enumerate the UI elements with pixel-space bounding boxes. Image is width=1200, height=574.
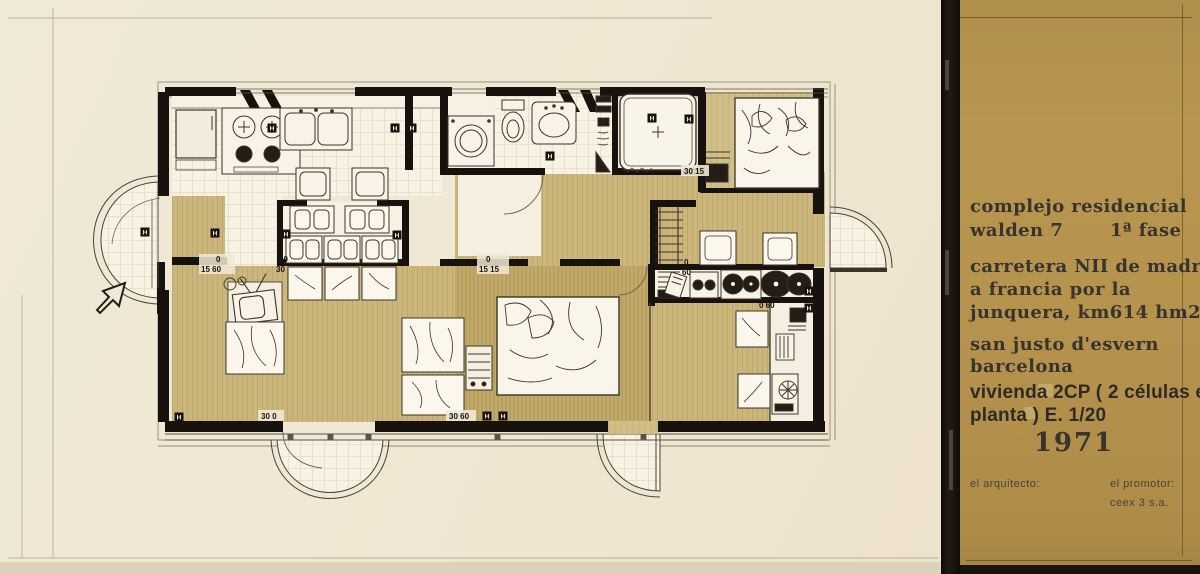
svg-text:H: H [143,230,148,237]
h-marker: H [546,152,555,161]
drawing-title-line1: vivienda 2CP ( 2 células en [970,382,1200,404]
svg-text:H: H [284,232,289,239]
bottom-railing [165,434,828,440]
paper-bottom-edge [0,562,941,574]
table [290,206,334,233]
record-player [721,270,761,299]
level-label: 30 0 [261,412,277,421]
balcony-bottom-middle [597,434,660,497]
city-line1: san justo d'esvern [970,334,1159,355]
svg-text:H: H [393,126,398,133]
washing-machine [448,116,494,166]
level-label: 60 [279,255,288,264]
address-line3: junquera, km614 hm2. [970,302,1200,323]
level-label: 30 15 [684,167,705,176]
table [324,236,360,263]
h-marker: H [175,413,184,422]
level-label: 0 [684,258,689,267]
floor-cushions [288,267,396,300]
h-marker: H [685,115,694,124]
promoter-label: el promotor: [1110,478,1175,490]
balcony-left [94,176,161,304]
double-bed [497,297,619,395]
tape-scuff [949,430,953,490]
address-line2: a francia por la [970,279,1131,300]
books [776,334,794,360]
svg-text:H: H [687,117,692,124]
vinyl-records [761,271,811,297]
h-marker: H [141,228,150,237]
project-phase: 1ª fase [1110,220,1181,241]
svg-text:H: H [213,231,218,238]
double-sink [280,108,352,150]
level-label: 15 15 [479,265,500,274]
h-marker: H [282,230,291,239]
shower [620,94,696,172]
city-line2: barcelona [970,356,1073,377]
h-marker: H [393,231,402,240]
panel-bottom-edge [960,565,1200,574]
svg-text:H: H [807,289,812,296]
project-title-line1: complejo residencial [970,196,1187,217]
svg-text:H: H [548,154,553,161]
architect-label: el arquitecto: [970,478,1040,490]
address-line1: carretera NII de madrid [970,256,1200,277]
tape-scuff [945,250,949,295]
table [286,236,322,263]
level-label: 30 60 [449,412,470,421]
washbasin [532,102,576,144]
table [345,206,389,233]
entry-arrow [97,283,125,313]
svg-text:H: H [395,233,400,240]
h-marker: H [268,124,277,133]
h-marker: H [391,124,400,133]
level-label: 0 [216,255,221,264]
h-marker: H [805,287,814,296]
panel-rule-top [960,17,1192,18]
panel-rule-right [1182,4,1183,556]
cassette-deck [665,272,718,298]
svg-text:H: H [410,126,415,133]
table [362,236,398,263]
svg-text:H: H [650,116,655,123]
black-tape-spine [941,0,960,574]
radio [466,346,492,390]
level-label: 60 [682,268,691,277]
balcony-bottom-left [271,440,389,499]
svg-text:H: H [485,414,490,421]
level-label: 30 [276,265,285,274]
svg-text:H: H [270,126,275,133]
h-marker: H [211,229,220,238]
svg-text:H: H [177,415,182,422]
h-marker: H [499,412,508,421]
drawing-title-line2: planta ) E. 1/20 [970,405,1106,427]
panel-rule-bottom [966,560,1192,561]
svg-text:H: H [807,306,812,313]
scanned-drawing-sheet: 0 15 60 60 30 0 15 15 0 60 30 15 0 60 30… [0,0,1200,574]
balcony-right [830,207,892,272]
year: 1971 [960,428,1188,458]
h-marker: H [408,124,417,133]
project-title-line2: walden 7 [970,220,1063,241]
svg-text:H: H [501,414,506,421]
promoter-name: ceex 3 s.a. [1110,497,1169,509]
level-label: 15 60 [201,265,222,274]
level-label: 0 [486,255,491,264]
desk-typewriter [772,374,798,414]
toilet [502,100,524,142]
title-panel: complejo residencial walden 7 1ª fase ca… [960,0,1200,574]
h-marker: H [805,304,814,313]
tape-scuff [945,60,949,90]
h-marker: H [483,412,492,421]
level-label: 0 60 [759,301,775,310]
h-marker: H [648,114,657,123]
